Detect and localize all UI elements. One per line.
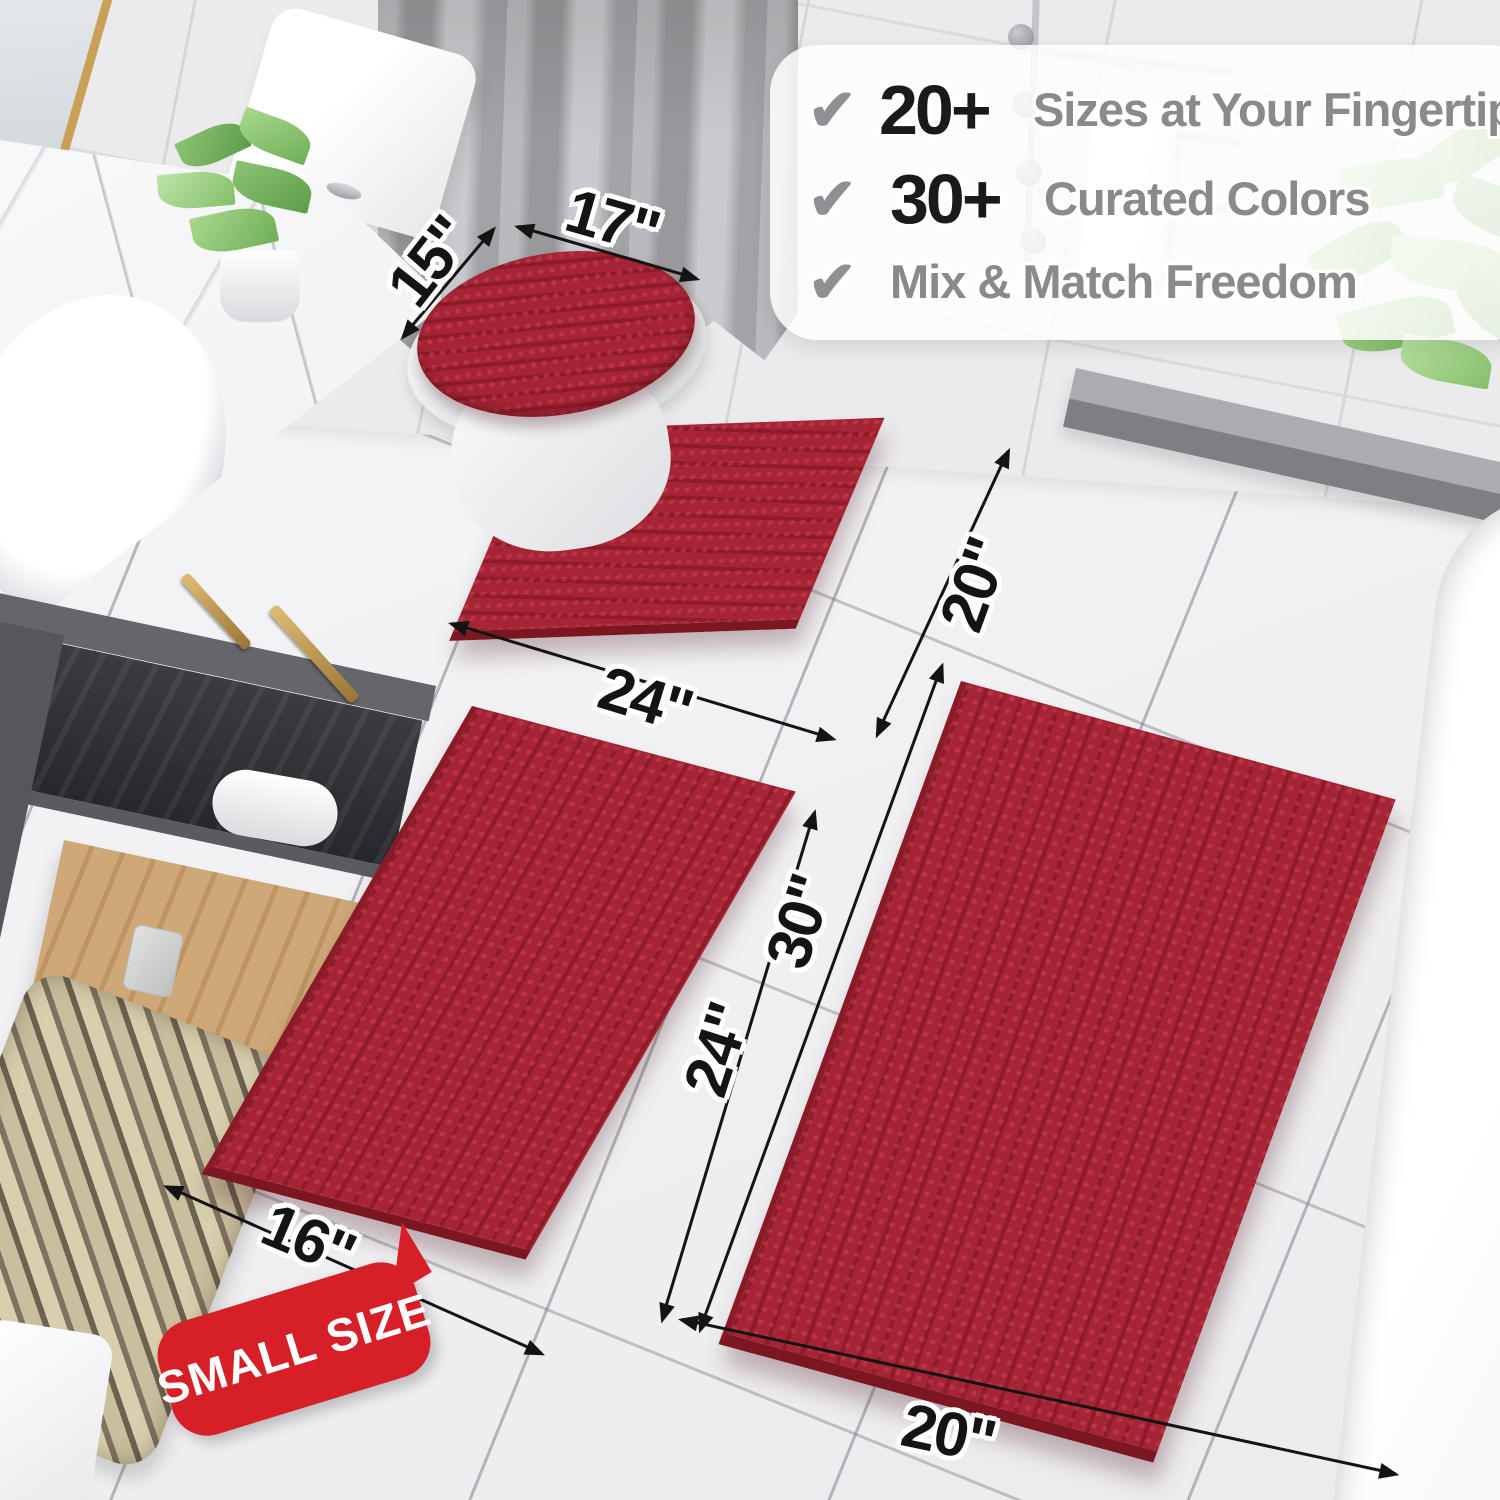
feature-number: 30+ bbox=[890, 159, 1026, 239]
plant-leaf bbox=[229, 160, 315, 214]
feature-row: ✔ 20+ Sizes at Your Fingertips bbox=[808, 70, 1500, 150]
bathtub bbox=[1320, 478, 1500, 1500]
dim-label-small-length: 24" bbox=[670, 995, 766, 1105]
feature-label: Curated Colors bbox=[1044, 171, 1370, 226]
feature-banner: ✔ 20+ Sizes at Your Fingertips ✔ 30+ Cur… bbox=[770, 45, 1500, 340]
feature-row: ✔ 30+ Curated Colors bbox=[808, 159, 1500, 239]
feature-number: 20+ bbox=[879, 70, 1015, 150]
dim-label-contour-width: 24" bbox=[590, 653, 699, 748]
feature-label: Sizes at Your Fingertips bbox=[1033, 82, 1500, 137]
counter-plant bbox=[148, 118, 328, 338]
check-icon: ✔ bbox=[808, 76, 861, 144]
plant-leaf bbox=[157, 169, 236, 211]
check-icon: ✔ bbox=[808, 165, 872, 233]
feature-label: Mix & Match Freedom bbox=[890, 254, 1357, 309]
white-towel bbox=[0, 1317, 115, 1500]
bathroom-product-scene: 17" 15" 20" 24" 30" 24" 16" 20" SMALL SI… bbox=[0, 0, 1500, 1500]
plant-pot bbox=[220, 250, 300, 322]
runner-bath-rug bbox=[719, 681, 1396, 1463]
dim-label-contour-depth: 20" bbox=[926, 529, 1024, 640]
feature-row: ✔ Mix & Match Freedom bbox=[808, 248, 1500, 316]
check-icon: ✔ bbox=[808, 248, 872, 316]
plant-leaf bbox=[1397, 332, 1495, 389]
